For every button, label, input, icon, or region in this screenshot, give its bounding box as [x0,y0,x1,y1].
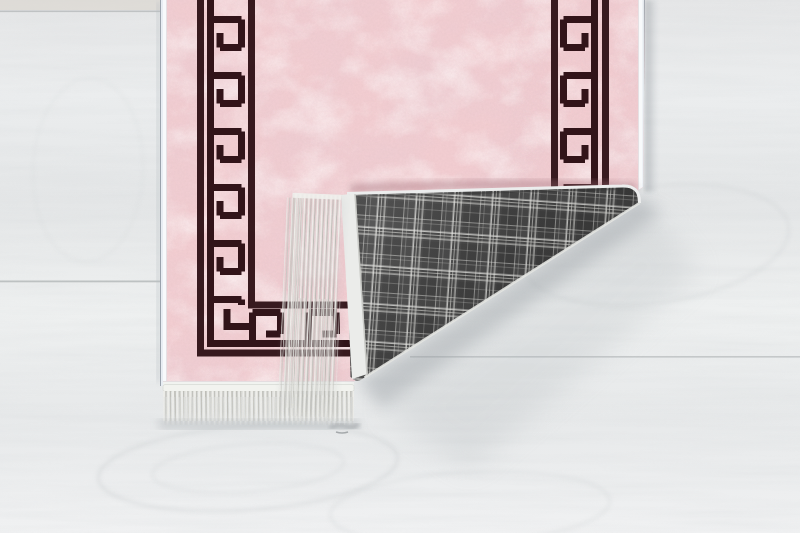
product-photo-rug-scene [0,0,800,533]
rug-left-edge-shadow [157,2,160,382]
rug-right-edge-shadow [645,0,658,192]
fold-and-fringe-layer [0,0,800,533]
